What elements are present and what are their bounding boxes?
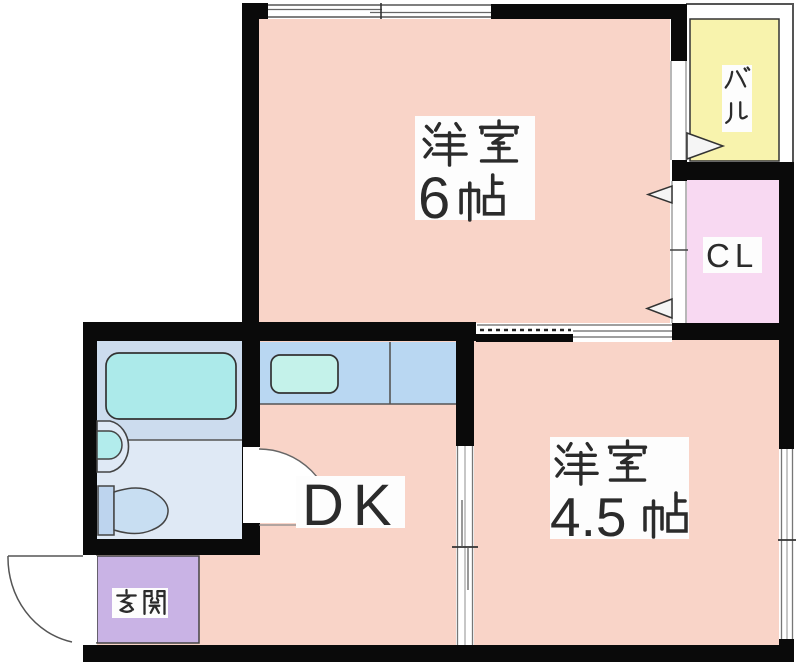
svg-text:4.5: 4.5 xyxy=(550,486,626,548)
svg-text:DK: DK xyxy=(302,473,401,538)
svg-text:6: 6 xyxy=(418,166,450,231)
svg-text:CL: CL xyxy=(706,237,758,274)
